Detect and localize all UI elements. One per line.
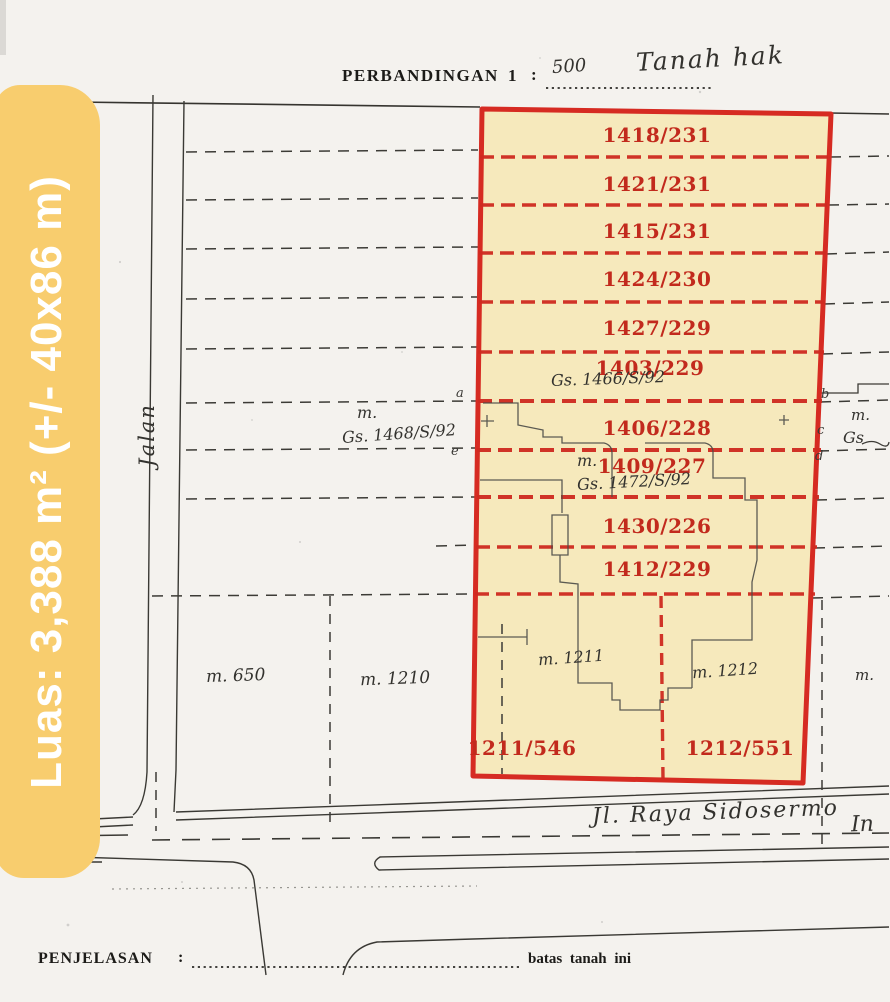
parcel-label: 1430/226 <box>603 514 712 538</box>
edge-letter-a: a <box>456 386 464 401</box>
vertical-street-label: Jalan <box>130 388 164 482</box>
scale-value-handwritten: 500 <box>551 55 587 78</box>
parcel-label: 1412/229 <box>603 557 712 581</box>
footer-colon: : <box>178 949 183 967</box>
scale-ratio-one: 1 <box>508 66 517 86</box>
area-highlight-banner: Luas: 3,388 m² (+/- 40x86 m) <box>0 85 100 878</box>
parcel-label: 1421/231 <box>603 172 712 196</box>
parcel-label: 1406/228 <box>603 416 712 440</box>
parcel-label: 1418/231 <box>603 123 712 147</box>
street-name-jalan: Jalan <box>135 403 159 467</box>
edge-letter-c: c <box>817 423 824 438</box>
parcel-rows-left-dashed <box>152 150 478 596</box>
area-banner-text: Luas: 3,388 m² (+/- 40x86 m) <box>22 175 72 789</box>
survey-note-m-left: m. <box>357 403 377 422</box>
footer-label: PENJELASAN <box>38 950 153 968</box>
scale-colon: : <box>531 65 537 85</box>
edge-letter-e: e <box>451 444 459 459</box>
edge-letter-b: b <box>821 387 829 402</box>
highlighted-land-boundary <box>473 109 831 783</box>
survey-note-m1210: m. 1210 <box>360 668 431 690</box>
parcel-label: 1415/231 <box>603 219 712 243</box>
footer-note: batas tanah ini <box>528 951 631 968</box>
map-linework <box>0 0 890 1002</box>
survey-note-gs1466: Gs. 1466/S/92 <box>551 367 666 390</box>
survey-note-m-mid: m. <box>577 451 597 470</box>
scanned-land-survey-map: PERBANDINGAN 1 : 500 Tanah hak Luas: 3,3… <box>0 0 890 1002</box>
parcel-label: 1212/551 <box>686 736 795 760</box>
parcel-label: 1427/229 <box>603 316 712 340</box>
parcel-label: 1424/230 <box>603 267 712 291</box>
survey-note-m650: m. 650 <box>206 665 266 687</box>
parcel-label: 1211/546 <box>468 736 577 760</box>
survey-note-m-right: m. <box>851 406 870 424</box>
survey-note-gs-right: Gs <box>843 428 864 447</box>
edge-letter-d: d <box>815 449 823 464</box>
scale-label: PERBANDINGAN <box>342 66 499 86</box>
survey-note-m-right-low: m. <box>855 666 874 684</box>
street-name-bottom-cont: In <box>851 812 875 838</box>
